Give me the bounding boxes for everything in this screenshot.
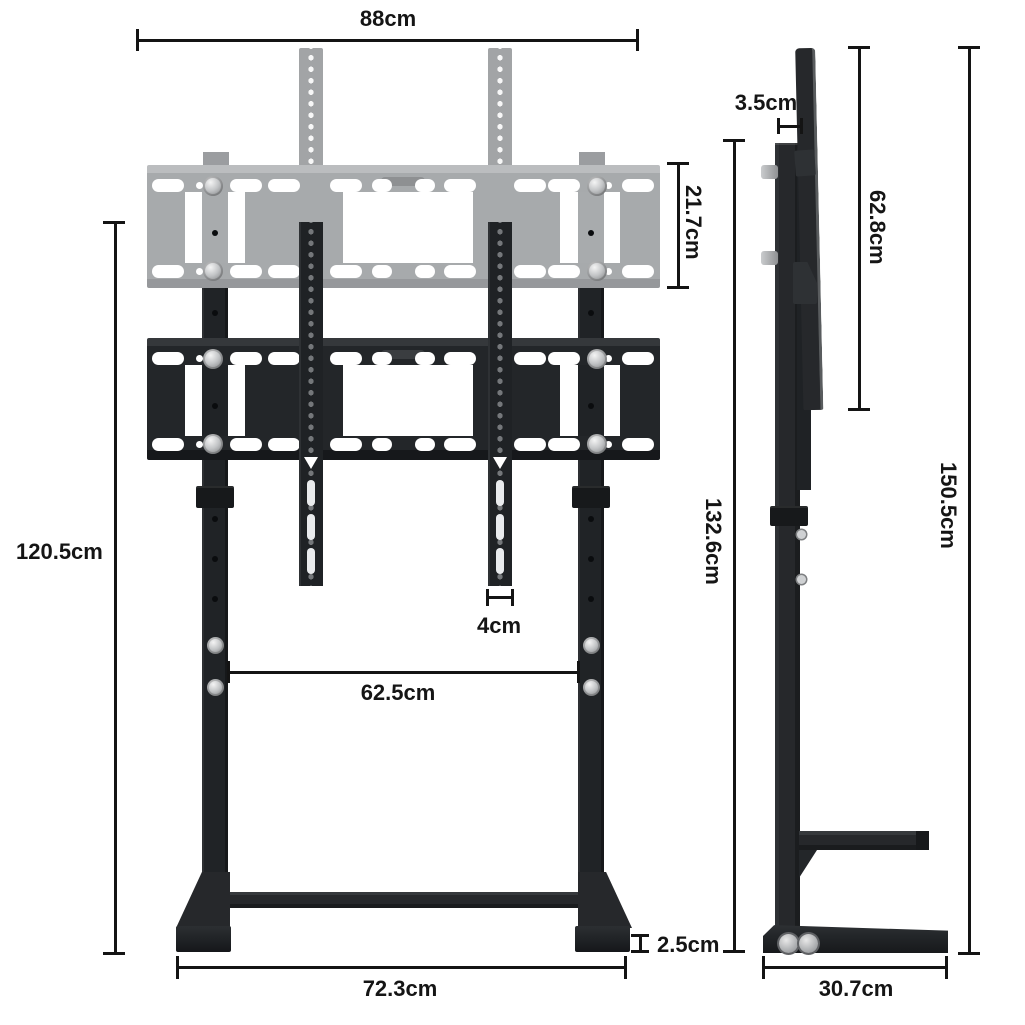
product-dimension-diagram: 88cm 21.7cm 120.5cm 4cm 62.5cm 2.5cm 72.…	[0, 0, 1025, 1025]
dim-tick	[723, 950, 745, 953]
dim-line-total-height	[968, 47, 971, 955]
dim-tick	[800, 118, 803, 134]
dim-tick	[848, 46, 870, 49]
dim-tick	[848, 408, 870, 411]
dim-tick	[762, 956, 765, 979]
side-screw-upper	[761, 165, 778, 179]
side-screw-lower	[761, 251, 778, 265]
dim-tick	[945, 956, 948, 979]
side-foot-glide	[799, 934, 818, 953]
side-support-bar-endcap	[916, 831, 929, 850]
dim-label-depth-top: 3.5cm	[735, 92, 797, 114]
dim-label-frame-height: 132.6cm	[702, 498, 724, 585]
side-rail-screw	[797, 575, 806, 584]
side-gusset	[799, 850, 817, 878]
side-hook-upper	[794, 149, 816, 176]
side-rail-screw	[797, 530, 806, 539]
side-view: 3.5cm 62.8cm 132.6cm 150.5cm 30.7cm	[0, 0, 1025, 1025]
dim-tick	[958, 952, 980, 955]
side-foot-glide	[779, 934, 798, 953]
dim-line-base-depth	[763, 966, 948, 969]
dim-tick	[777, 118, 780, 134]
dim-tick	[723, 139, 745, 142]
dim-label-total-height: 150.5cm	[937, 462, 959, 549]
side-collar	[770, 506, 808, 526]
dim-line-plate-height	[858, 47, 861, 410]
side-support-bar	[799, 831, 929, 850]
dim-label-plate-height: 62.8cm	[866, 190, 888, 265]
dim-label-base-depth: 30.7cm	[819, 978, 894, 1000]
dim-line-frame-height	[733, 140, 736, 953]
dim-tick	[958, 46, 980, 49]
